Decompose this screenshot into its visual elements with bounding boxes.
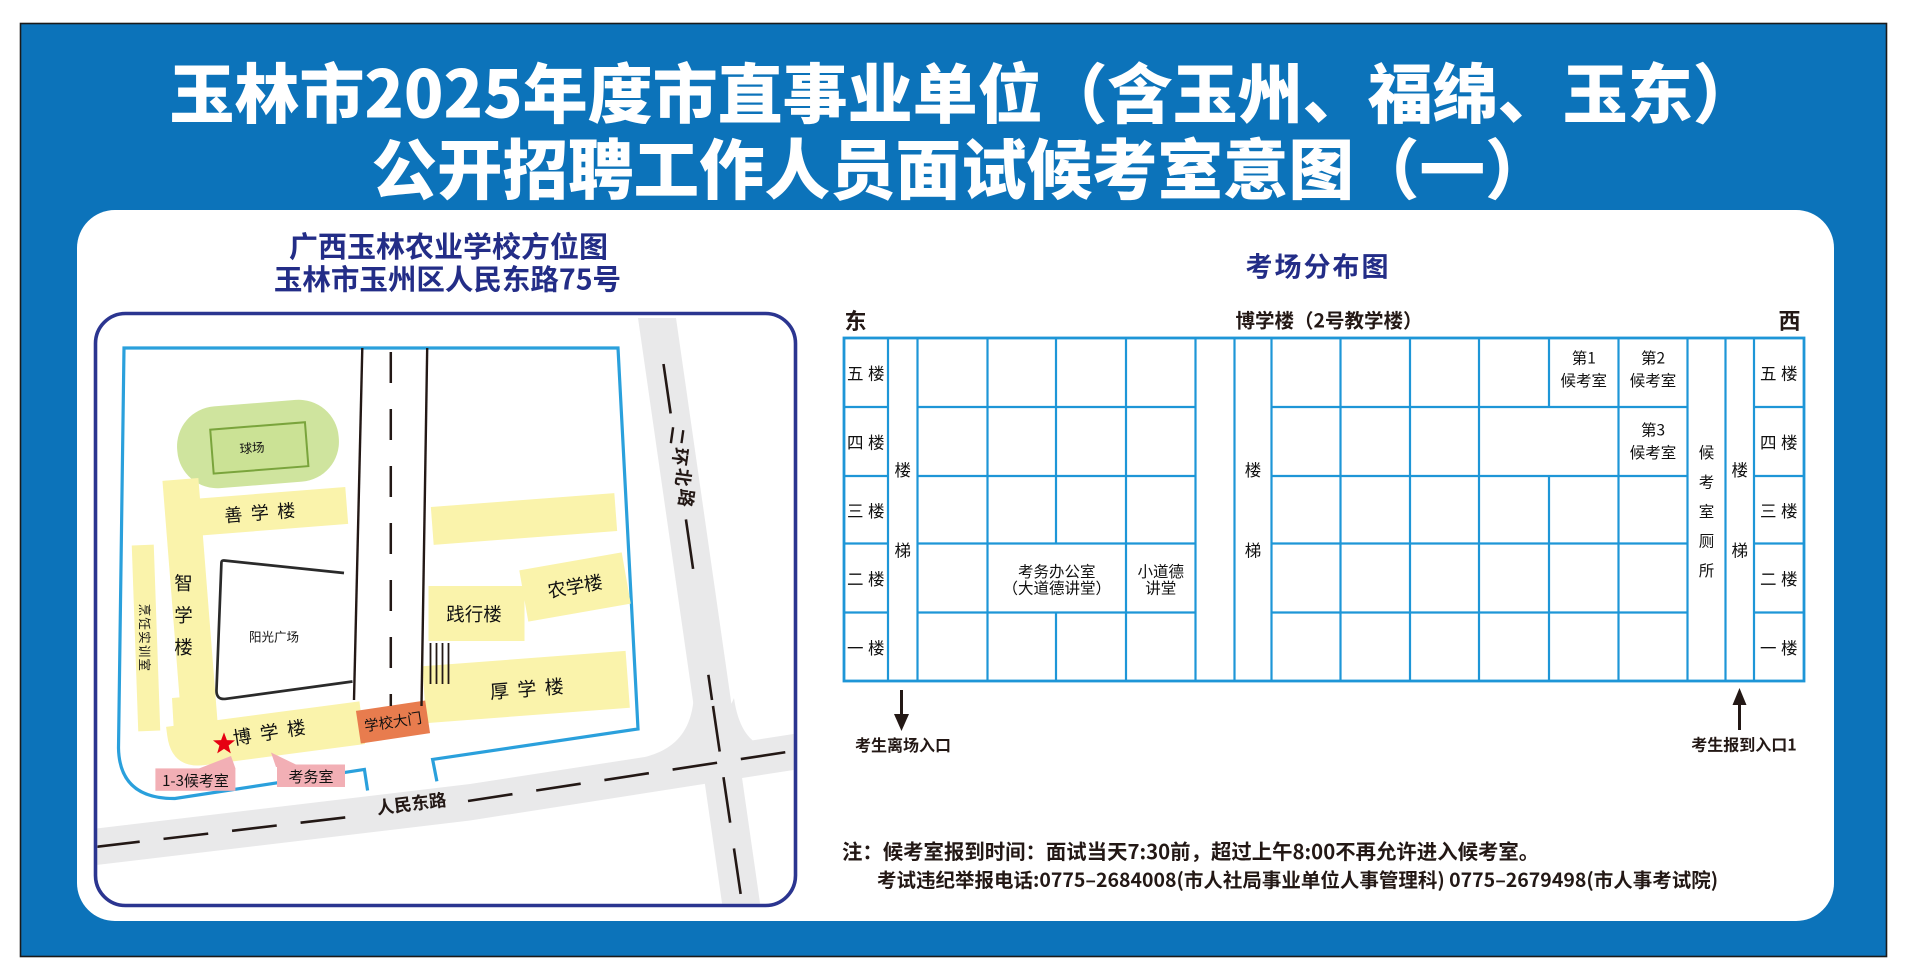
- svg-text:环: 环: [667, 446, 695, 467]
- svg-text:西: 西: [1778, 304, 1800, 336]
- svg-text:考生离场入口: 考生离场入口: [855, 732, 951, 756]
- svg-text:路: 路: [673, 487, 701, 508]
- svg-text:五楼: 五楼: [847, 361, 889, 385]
- svg-text:厕: 厕: [1699, 530, 1715, 552]
- svg-text:考场分布图: 考场分布图: [1246, 246, 1391, 285]
- svg-text:室: 室: [1699, 500, 1715, 522]
- svg-text:一楼: 一楼: [847, 635, 889, 659]
- svg-text:考: 考: [1699, 471, 1715, 493]
- svg-text:三楼: 三楼: [847, 498, 889, 522]
- svg-text:第3: 第3: [1641, 419, 1665, 441]
- svg-text:烹饪实训室: 烹饪实训室: [136, 604, 155, 673]
- svg-text:注：候考室报到时间：面试当天7:30前，超过上午8:00不再: 注：候考室报到时间：面试当天7:30前，超过上午8:00不再允许进入候考室。: [842, 835, 1539, 865]
- svg-text:北: 北: [670, 467, 698, 488]
- svg-text:二楼: 二楼: [1760, 566, 1802, 590]
- svg-text:四楼: 四楼: [847, 430, 889, 454]
- svg-text:三楼: 三楼: [1760, 498, 1802, 522]
- svg-text:梯: 梯: [1245, 538, 1262, 562]
- svg-text:球场: 球场: [239, 437, 265, 458]
- svg-text:讲堂: 讲堂: [1145, 577, 1176, 599]
- svg-text:二楼: 二楼: [847, 566, 889, 590]
- svg-text:1-3候考室: 1-3候考室: [162, 770, 229, 791]
- svg-text:梯: 梯: [895, 538, 912, 562]
- svg-text:考生报到入口1: 考生报到入口1: [1691, 732, 1796, 756]
- svg-text:候: 候: [1699, 441, 1715, 463]
- svg-text:楼: 楼: [174, 634, 193, 660]
- svg-text:一楼: 一楼: [1760, 635, 1802, 659]
- svg-text:（大道德讲堂）: （大道德讲堂）: [1003, 577, 1112, 599]
- svg-text:楼: 楼: [895, 457, 912, 481]
- svg-text:候考室: 候考室: [1630, 441, 1677, 463]
- svg-text:二: 二: [664, 425, 692, 446]
- svg-text:楼: 楼: [1245, 457, 1262, 481]
- svg-text:公开招聘工作人员面试候考室意图（一）: 公开招聘工作人员面试候考室意图（一）: [371, 118, 1550, 213]
- svg-text:阳光广场: 阳光广场: [249, 627, 299, 646]
- svg-text:第1: 第1: [1572, 347, 1596, 369]
- svg-text:第2: 第2: [1641, 347, 1665, 369]
- svg-text:考务室: 考务室: [288, 766, 333, 787]
- svg-text:五楼: 五楼: [1760, 361, 1802, 385]
- svg-text:博学楼（2号教学楼）: 博学楼（2号教学楼）: [1235, 305, 1422, 334]
- svg-text:考试违纪举报电话:0775–2684008(市人社局事业单位: 考试违纪举报电话:0775–2684008(市人社局事业单位人事管理科) 077…: [877, 864, 1718, 893]
- svg-text:四楼: 四楼: [1760, 430, 1802, 454]
- svg-text:候考室: 候考室: [1630, 369, 1677, 391]
- svg-text:践行楼: 践行楼: [446, 601, 502, 627]
- svg-text:候考室: 候考室: [1561, 369, 1608, 391]
- svg-text:楼: 楼: [1732, 457, 1749, 481]
- svg-text:所: 所: [1699, 559, 1715, 581]
- svg-text:智: 智: [174, 570, 193, 596]
- svg-text:学: 学: [174, 602, 193, 628]
- svg-text:玉林市玉州区人民东路75号: 玉林市玉州区人民东路75号: [274, 258, 621, 299]
- svg-text:梯: 梯: [1732, 538, 1749, 562]
- svg-text:东: 东: [844, 304, 866, 336]
